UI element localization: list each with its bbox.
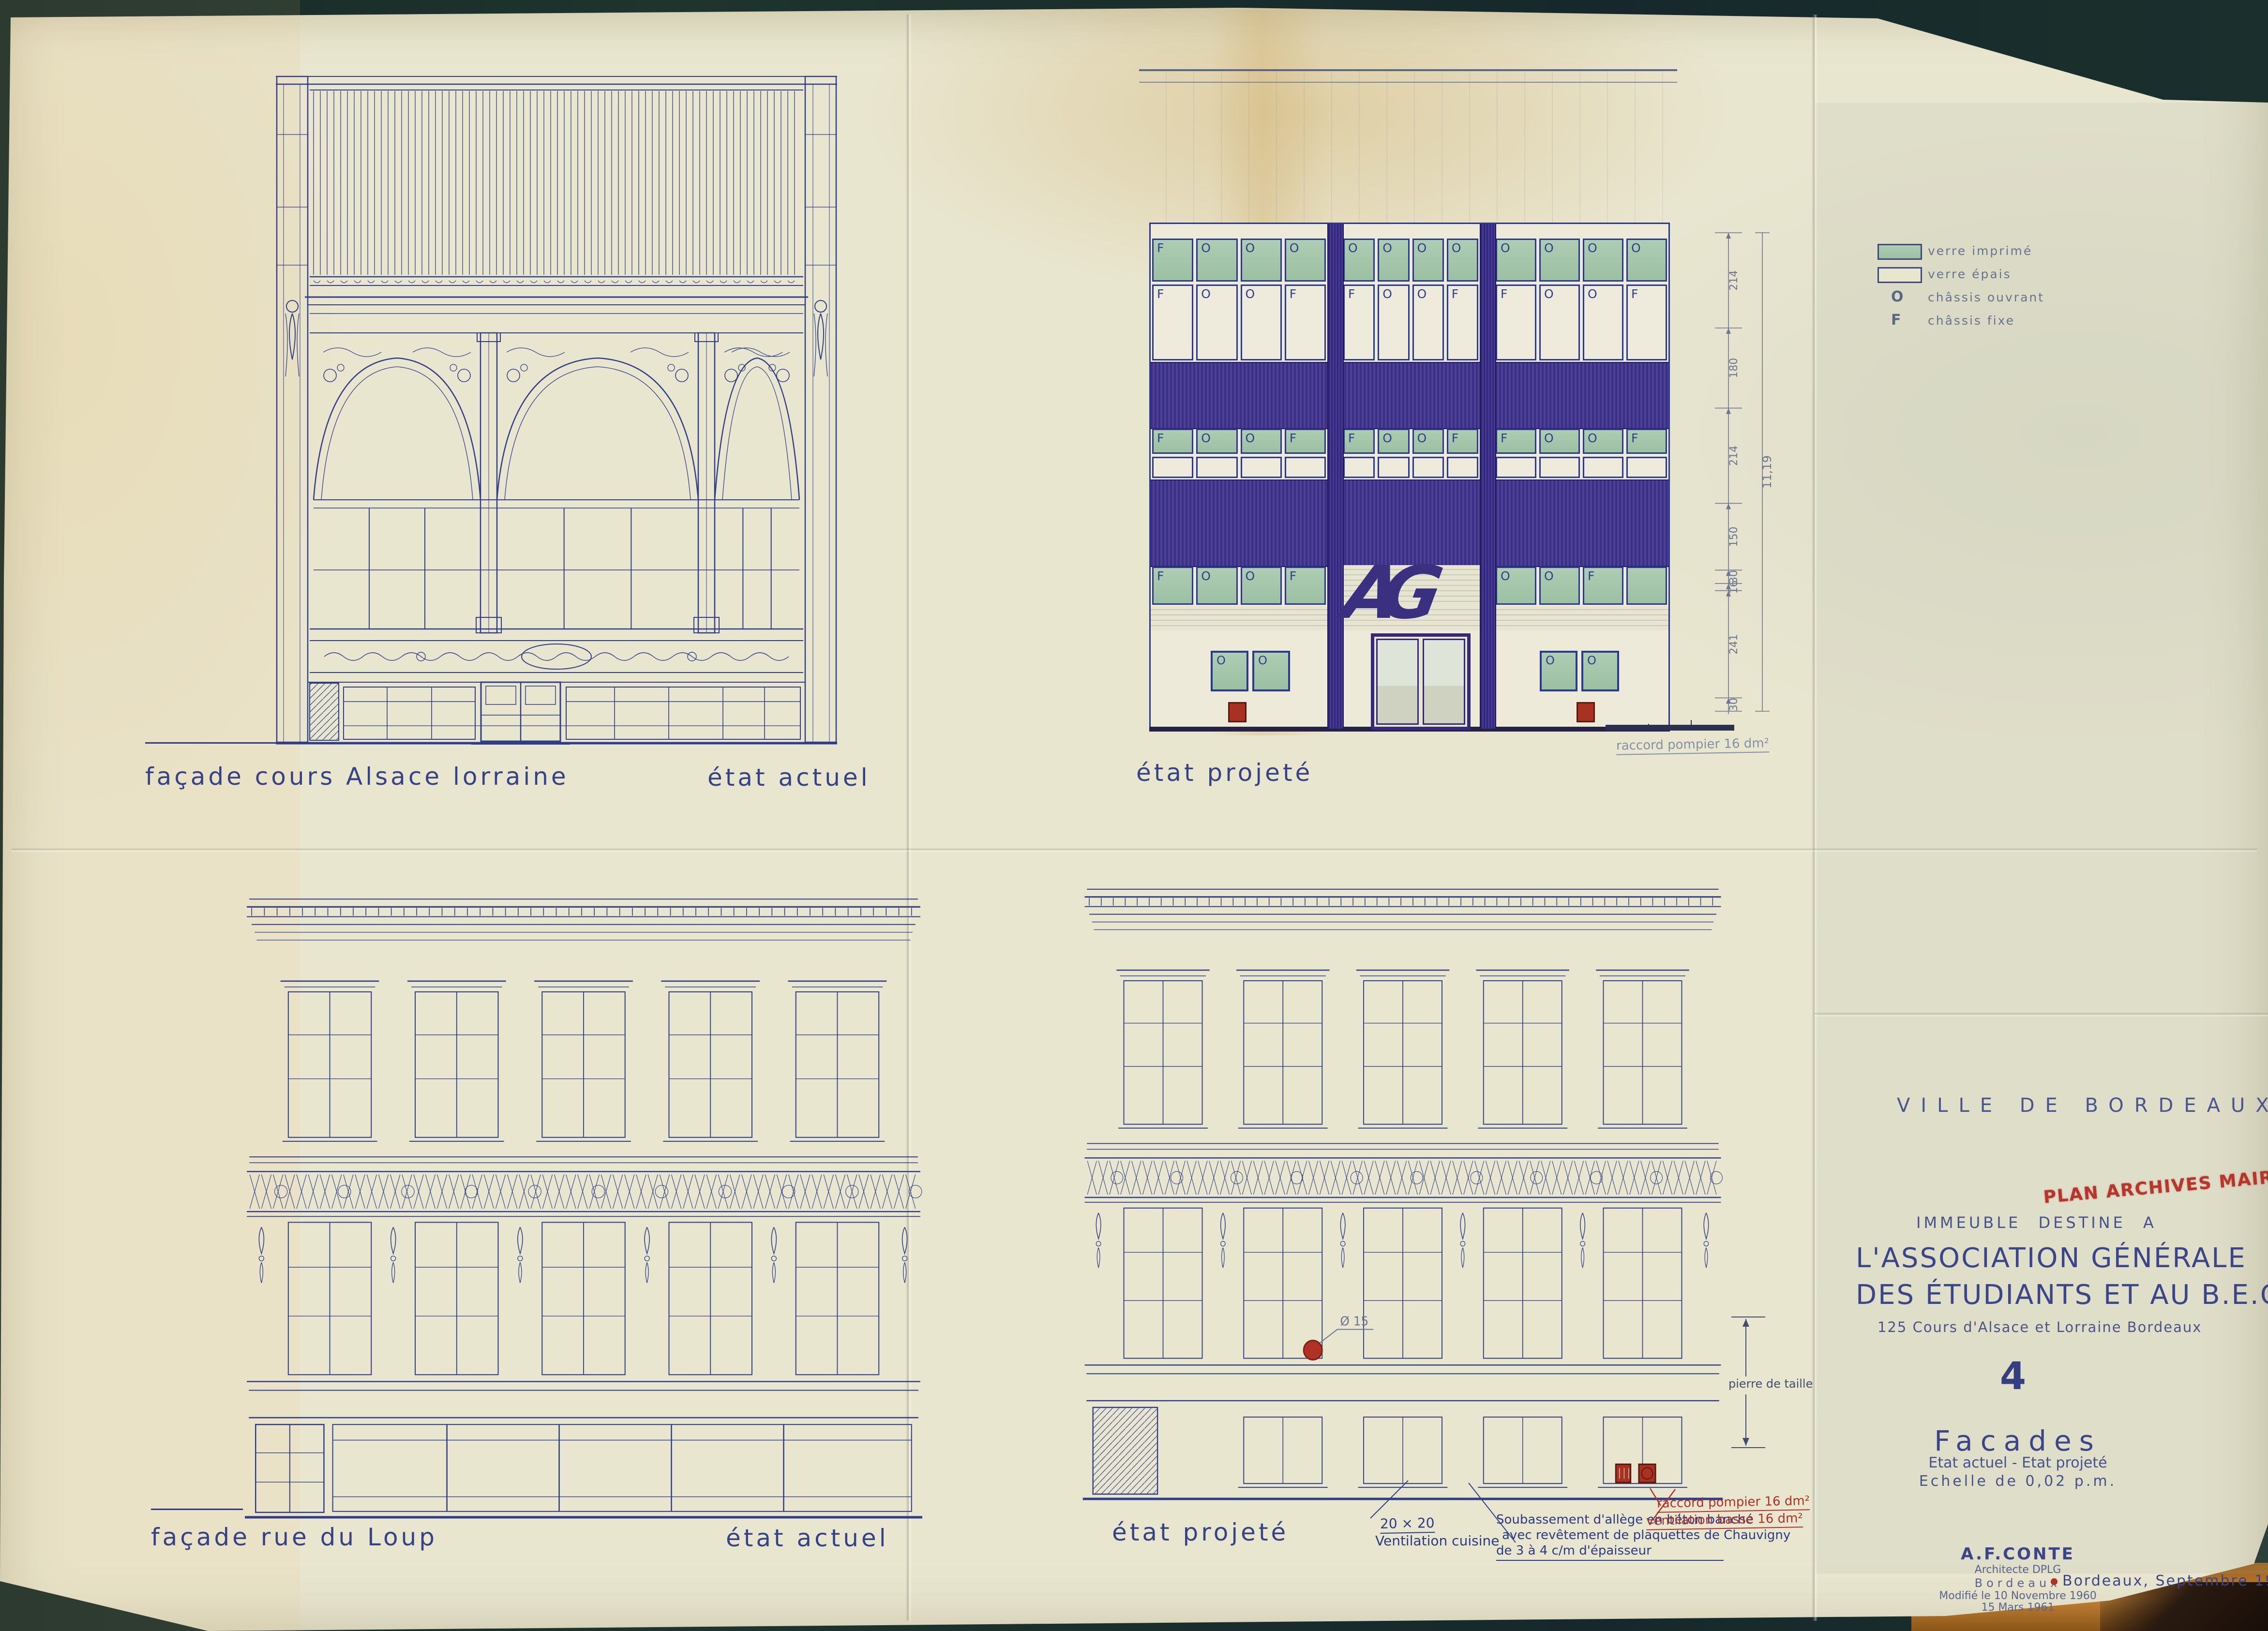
entrance-door — [1371, 633, 1471, 730]
titleblock-destine: IMMEUBLE DESTINE A — [1916, 1213, 2129, 1232]
sash-letter: O — [1382, 287, 1392, 301]
window-panel: O — [1539, 429, 1580, 454]
sash-letter: F — [1290, 431, 1296, 445]
fold-line-horizontal — [12, 848, 2257, 853]
sash-letter: F — [1501, 431, 1507, 445]
facade-column — [1327, 224, 1344, 729]
window-panel: F — [1583, 567, 1623, 605]
svg-text:Ø 15: Ø 15 — [1340, 1314, 1368, 1329]
sash-letter: F — [1157, 569, 1164, 583]
window-panel — [1378, 457, 1409, 478]
window-panel: F — [1285, 567, 1326, 605]
pencil-note-raccord: raccord pompier 16 dm² — [1616, 736, 1770, 755]
facade-loup-actuel-svg — [242, 885, 925, 1520]
legend-symbol: F — [1891, 312, 1901, 329]
legend-symbol: O — [1891, 288, 1904, 305]
window-panel: O — [1447, 239, 1478, 282]
window-panel: O — [1539, 284, 1580, 360]
window-panel: O — [1412, 239, 1444, 282]
window-panel — [1285, 457, 1326, 478]
window-panel — [1539, 457, 1580, 478]
sash-letter: O — [1544, 569, 1554, 583]
red-dot — [2051, 1578, 2058, 1585]
projected-facade-curtain-wall: FOOOOOOOOOOOFOOFFOOFFOOFFOOFFOOFFOOFFOOF… — [1149, 223, 1670, 730]
titleblock-scale: Echelle de 0,02 p.m. — [1916, 1473, 2119, 1490]
sash-letter: O — [1587, 654, 1596, 667]
legend-swatch-white — [1877, 267, 1922, 283]
caption-facade-loup: façade rue du Loup — [151, 1523, 437, 1551]
sash-letter: O — [1246, 241, 1255, 255]
sash-letter: O — [1544, 241, 1554, 255]
ground-line-extension — [151, 1509, 243, 1510]
ground-floor: OOOO — [1151, 630, 1668, 724]
window-panel — [1241, 457, 1282, 478]
window-panel — [1343, 457, 1375, 478]
titleblock-org2: DES ÉTUDIANTS ET AU B.E.C. — [1856, 1279, 2194, 1311]
window-panel: F — [1626, 429, 1667, 454]
window-panel: O — [1583, 284, 1623, 360]
window-panel — [1583, 457, 1623, 478]
sash-letter: O — [1246, 569, 1255, 583]
sash-letter: F — [1501, 287, 1507, 301]
caption-facade-alsace: façade cours Alsace lorraine — [145, 763, 569, 791]
sash-letter: O — [1258, 654, 1267, 667]
legend-label: verre épais — [1928, 267, 2012, 281]
window-panel — [1626, 457, 1667, 478]
sash-letter: O — [1631, 241, 1641, 255]
window-panel: O — [1539, 239, 1580, 282]
window-panel: F — [1152, 567, 1193, 605]
window-panel: O — [1496, 567, 1536, 605]
sash-letter: F — [1290, 569, 1296, 583]
titleblock-address: 125 Cours d'Alsace et Lorraine Bordeaux — [1877, 1319, 2148, 1335]
window-panel: O — [1412, 284, 1444, 360]
parapet-wall — [1139, 69, 1677, 224]
caption-etat-actuel-bottom: état actuel — [726, 1524, 889, 1552]
sash-letter: F — [1157, 287, 1164, 301]
ground-window: O — [1252, 651, 1290, 691]
sash-letter: F — [1157, 431, 1164, 445]
annotation-ventilation-basse: ventilation basse 16 dm² — [1646, 1511, 1803, 1530]
titleblock-sheet-number: 4 — [1984, 1355, 2042, 1398]
sash-letter: F — [1452, 431, 1458, 445]
red-vent-square — [1577, 702, 1595, 722]
ground-line-extension — [145, 742, 277, 744]
svg-text:11,19: 11,19 — [1760, 455, 1774, 489]
titleblock-architect: A.F.CONTE — [1936, 1544, 2100, 1564]
sash-letter: O — [1201, 241, 1211, 255]
annotation-soubassement-3: de 3 à 4 c/m d'épaisseur — [1496, 1543, 1652, 1558]
window-panel: F — [1152, 429, 1193, 454]
ag-monogram-logo: AG — [1344, 557, 1482, 642]
sash-letter: F — [1348, 431, 1355, 445]
window-panel: O — [1626, 239, 1667, 282]
sash-letter: O — [1501, 569, 1510, 583]
svg-text:180: 180 — [1728, 358, 1740, 378]
window-panel: O — [1196, 567, 1237, 605]
window-panel: O — [1196, 239, 1237, 282]
window-panel: O — [1241, 284, 1282, 360]
window-panel: F — [1343, 429, 1375, 454]
facade-alsace-actuel-svg — [276, 62, 837, 755]
window-panel: O — [1196, 429, 1237, 454]
sash-letter: O — [1382, 431, 1392, 445]
sash-letter: F — [1157, 241, 1164, 255]
window-panel: O — [1583, 429, 1623, 454]
window-panel: F — [1496, 284, 1536, 360]
sash-letter: O — [1290, 241, 1299, 255]
window-panel — [1447, 457, 1478, 478]
window-panel: O — [1412, 429, 1444, 454]
window-panel: F — [1285, 429, 1326, 454]
sash-letter: O — [1348, 241, 1358, 255]
svg-text:241: 241 — [1728, 634, 1740, 655]
window-panel: F — [1285, 284, 1326, 360]
caption-etat-projete-bottom: état projeté — [1112, 1518, 1289, 1546]
window-panel: F — [1496, 429, 1536, 454]
svg-text:30: 30 — [1728, 698, 1740, 711]
window-panel: O — [1241, 239, 1282, 282]
sash-letter: O — [1452, 241, 1461, 255]
sash-letter: O — [1201, 431, 1211, 445]
sash-letter: O — [1501, 241, 1510, 255]
svg-text:16: 16 — [1728, 580, 1740, 594]
sash-letter: O — [1544, 431, 1554, 445]
titleblock-city: VILLE DE BORDEAUX — [1897, 1094, 2148, 1117]
window-panel: O — [1378, 284, 1409, 360]
window-panel: O — [1496, 239, 1536, 282]
graphic-scale-bar — [1606, 725, 1734, 731]
window-panel: O — [1539, 567, 1580, 605]
annotation-underline — [1496, 1560, 1724, 1561]
window-panel — [1412, 457, 1444, 478]
sash-letter: O — [1201, 569, 1211, 583]
titleblock-subtitle: Etat actuel - Etat projeté — [1916, 1454, 2119, 1471]
window-panel: F — [1447, 429, 1478, 454]
sash-letter: F — [1452, 287, 1458, 301]
red-vent-square — [1228, 702, 1247, 722]
fold-line-horizontal — [1815, 1012, 2268, 1017]
window-panel: F — [1343, 284, 1375, 360]
annotation-ventilation-cuisine: Ventilation cuisine — [1375, 1533, 1499, 1549]
window-panel: F — [1152, 239, 1193, 282]
sash-letter: O — [1246, 287, 1255, 301]
sash-letter: O — [1588, 241, 1597, 255]
sash-letter: F — [1588, 569, 1594, 583]
date-note: Bordeaux, Septembre 1960. — [2062, 1572, 2268, 1589]
facade-alsace-projete: FOOOOOOOOOOOFOOFFOOFFOOFFOOFFOOFFOOFFOOF… — [1137, 69, 1679, 727]
sash-letter: O — [1382, 241, 1392, 255]
paper-tint-right — [1815, 103, 2268, 1573]
ground-window: O — [1540, 651, 1577, 691]
window-panel: F — [1447, 284, 1478, 360]
sash-letter: O — [1246, 431, 1255, 445]
window-panel: O — [1583, 239, 1623, 282]
window-panel: O — [1196, 284, 1237, 360]
window-panel: F — [1152, 284, 1193, 360]
sash-letter: O — [1417, 241, 1427, 255]
titleblock-org1: L'ASSOCIATION GÉNÉRALE — [1856, 1242, 2194, 1274]
titleblock-title: Facades — [1916, 1424, 2119, 1457]
sash-letter: O — [1544, 287, 1554, 301]
window-panel: O — [1378, 429, 1409, 454]
pierre-de-taille-dimension: pierre de taille — [1727, 1306, 1810, 1456]
svg-text:150: 150 — [1728, 526, 1740, 547]
annotation-raccord-pompier: raccord pompier 16 dm² — [1657, 1494, 1810, 1513]
ground-window-pair: OO — [1209, 651, 1292, 691]
legend-label: châssis fixe — [1928, 314, 2015, 328]
sash-letter: O — [1201, 287, 1211, 301]
sash-letter: F — [1631, 287, 1638, 301]
sash-letter: F — [1631, 431, 1638, 445]
sash-letter: O — [1588, 287, 1597, 301]
sash-letter: O — [1217, 654, 1226, 667]
window-panel: O — [1285, 239, 1326, 282]
titleblock-modified1: Modifié le 10 Novembre 1960 — [1926, 1590, 2110, 1602]
window-panel — [1152, 457, 1193, 478]
legend-label: verre imprimé — [1928, 244, 2032, 258]
ground-window: O — [1211, 651, 1248, 691]
caption-etat-actuel-top: état actuel — [707, 763, 871, 792]
annotation-2020: 20 × 20 — [1380, 1515, 1435, 1534]
svg-text:214: 214 — [1728, 446, 1740, 466]
window-panel — [1196, 457, 1237, 478]
window-panel: O — [1378, 239, 1409, 282]
window-panel: O — [1241, 567, 1282, 605]
facade-column — [1480, 224, 1496, 729]
legend-label: châssis ouvrant — [1928, 290, 2044, 304]
ground-window: O — [1581, 651, 1619, 691]
spandrel-band — [1151, 362, 1668, 429]
dimension-chain-svg: 21418021415030162413011,19 — [1709, 211, 1791, 748]
window-panel: O — [1343, 239, 1375, 282]
sash-letter: O — [1588, 431, 1597, 445]
sash-letter: O — [1417, 287, 1427, 301]
sash-letter: F — [1348, 287, 1355, 301]
window-panel — [1496, 457, 1536, 478]
svg-text:214: 214 — [1728, 270, 1740, 290]
legend-swatch-green — [1877, 244, 1922, 260]
ground-window-pair: OO — [1538, 651, 1621, 691]
sash-letter: O — [1546, 654, 1555, 667]
caption-etat-projete-top: état projeté — [1136, 759, 1313, 787]
sash-letter: O — [1417, 431, 1427, 445]
sash-letter: F — [1290, 287, 1296, 301]
window-panel: O — [1241, 429, 1282, 454]
titleblock-modified2: 15 Mars 1961 — [1926, 1601, 2110, 1614]
window-panel: F — [1626, 284, 1667, 360]
window-panel — [1626, 567, 1667, 605]
pierre-label: pierre de taille — [1728, 1377, 1813, 1391]
facade-loup-projete-svg: Ø 15 — [1080, 876, 1726, 1502]
